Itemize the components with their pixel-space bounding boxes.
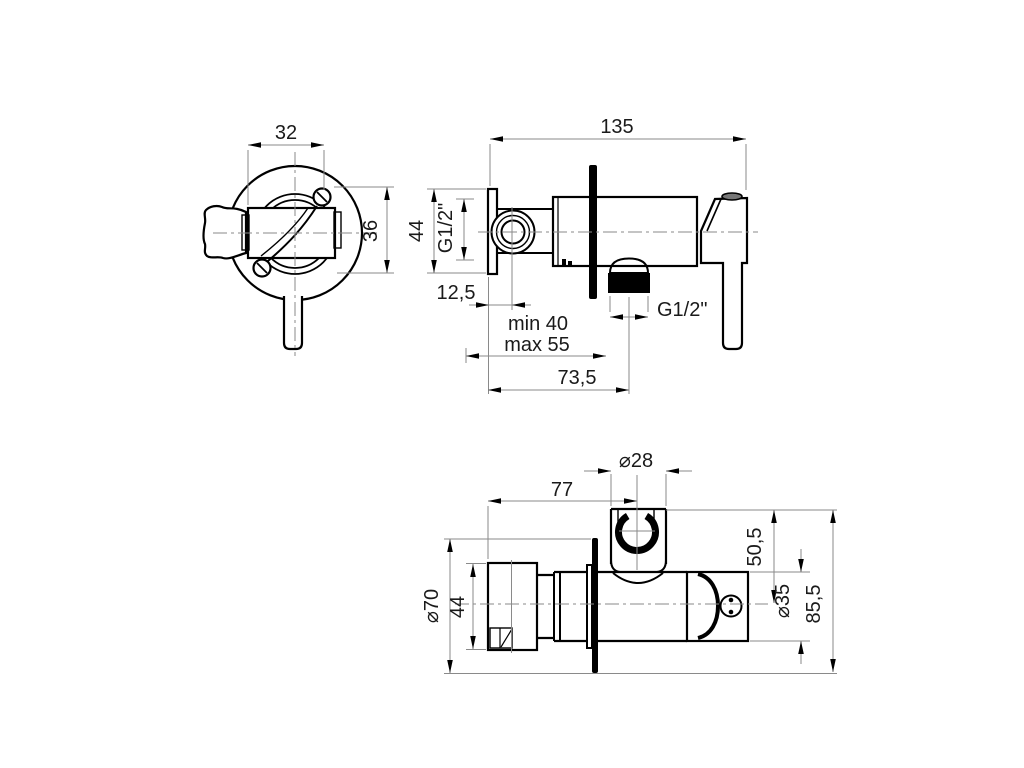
outlet-pipe-fill: [285, 296, 301, 346]
cup-fillet-left: [611, 560, 620, 572]
cup-saddle-arc: [613, 573, 663, 583]
arrowhead: [593, 353, 606, 359]
dim-text-outlet-thread: G1/2": [657, 299, 707, 321]
arrowhead: [384, 260, 390, 273]
arrowhead: [733, 136, 746, 142]
handle-indicator-cap: [722, 193, 742, 200]
dim-text-depth-max: max 55: [504, 334, 570, 356]
body-groove2: [568, 261, 572, 266]
arrowhead: [666, 468, 679, 474]
arrowhead: [635, 314, 648, 320]
arrowhead: [431, 260, 437, 273]
arrowhead: [616, 387, 629, 393]
arrowhead: [384, 187, 390, 200]
dim-text-depth-min: min 40: [508, 313, 568, 335]
outlet-thread-block: [608, 273, 650, 293]
cup-fillet-right: [657, 560, 666, 572]
arrowhead: [476, 302, 489, 308]
arrowhead: [830, 510, 836, 523]
dim-text-inlet-thread: G1/2": [435, 203, 457, 253]
arrowhead: [771, 510, 777, 523]
dim-text-handle-width: 44: [447, 596, 469, 618]
dim-text-length: 135: [600, 116, 633, 138]
arrowhead: [311, 142, 324, 148]
arrowhead: [447, 660, 453, 673]
arrowhead: [830, 659, 836, 672]
front-view: 32 36: [203, 122, 394, 356]
dim-text-overall-height: 85,5: [803, 585, 825, 624]
arrowhead: [470, 564, 476, 577]
dim-text-holder-height: 50,5: [744, 528, 766, 567]
arrowhead: [490, 136, 503, 142]
arrowhead: [798, 641, 804, 654]
arrowhead: [461, 199, 467, 212]
technical-drawing-page: 32 36 135: [0, 0, 1024, 768]
cap-screw-dot-top: [729, 598, 734, 603]
dim-text-plate-height: 44: [406, 220, 428, 242]
arrowhead: [624, 498, 637, 504]
handle-block: [701, 198, 747, 349]
mixer-body: [553, 197, 697, 266]
flange-ring: [587, 565, 592, 648]
top-view: ⌀28 77 ⌀70 44 50,5 ⌀35: [421, 450, 837, 674]
arrowhead: [447, 539, 453, 552]
arrowhead: [248, 142, 261, 148]
dim-text-holder-distance: 77: [551, 479, 573, 501]
dim-text-inlet-offset: 12,5: [437, 282, 476, 304]
arrowhead: [598, 468, 611, 474]
arrowhead: [461, 247, 467, 260]
body-groove1: [562, 259, 566, 266]
dim-text-plate-dia: ⌀70: [421, 589, 443, 623]
dim-text-body-dia: ⌀35: [772, 584, 794, 618]
mixer-dimensional-drawing: 32 36 135: [0, 0, 1024, 768]
arrowhead: [798, 559, 804, 572]
dim-text-width: 32: [275, 122, 297, 144]
side-view: 135 44 G1/2" 12,5 min 40 max 55 73,5: [406, 116, 758, 394]
arrowhead: [431, 189, 437, 202]
arrowhead: [488, 387, 501, 393]
dim-text-height: 36: [360, 220, 382, 242]
arrowhead: [512, 302, 525, 308]
arrowhead: [466, 353, 479, 359]
dim-text-holder-dia: ⌀28: [619, 450, 653, 472]
arrowhead: [610, 314, 623, 320]
lever-handle-end: [203, 206, 246, 258]
arrowhead: [470, 636, 476, 649]
wall-plate-edge: [592, 538, 598, 673]
dim-text-outlet-offset: 73,5: [558, 367, 597, 389]
arrowhead: [488, 498, 501, 504]
cap-screw-dot-bottom: [729, 610, 734, 615]
